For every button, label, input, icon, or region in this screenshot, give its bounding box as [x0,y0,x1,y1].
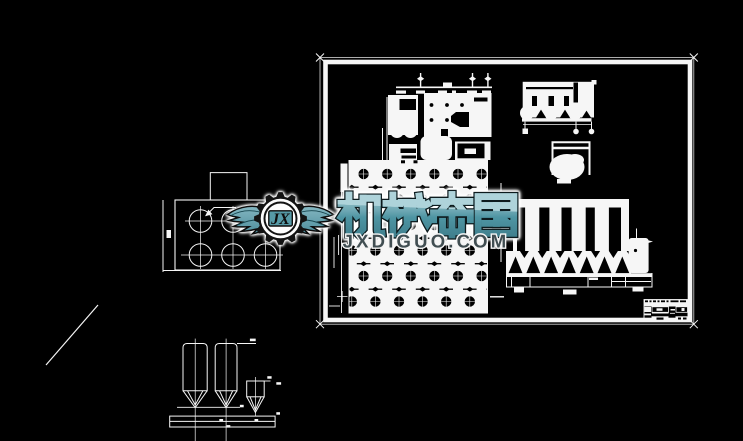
svg-text:JXDIGUO.COM: JXDIGUO.COM [343,231,510,252]
svg-text:JX: JX [270,211,290,228]
